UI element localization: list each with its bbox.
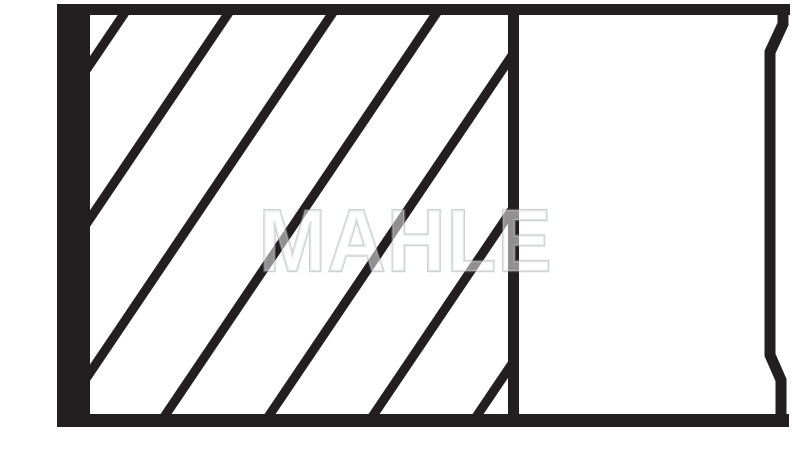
cross-section-diagram: MAHLE (0, 0, 799, 473)
left-edge-bar (57, 4, 90, 427)
top-border-line (57, 4, 790, 15)
bottom-border-line (57, 414, 789, 427)
drawing-canvas: MAHLE (0, 0, 799, 473)
right-edge-contour (770, 6, 783, 424)
mahle-watermark: MAHLE (259, 191, 553, 290)
